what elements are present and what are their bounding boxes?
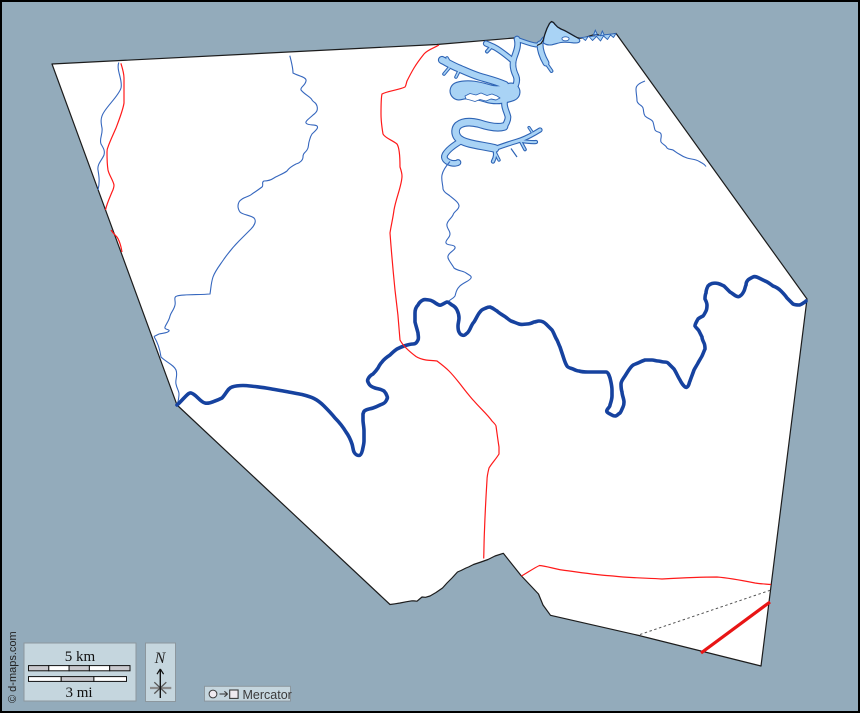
- svg-text:N: N: [154, 650, 167, 667]
- svg-text:3 mi: 3 mi: [65, 685, 92, 701]
- svg-text:5 km: 5 km: [65, 649, 96, 665]
- svg-text:Mercator: Mercator: [243, 688, 292, 702]
- svg-text:© d-maps.com: © d-maps.com: [7, 631, 19, 703]
